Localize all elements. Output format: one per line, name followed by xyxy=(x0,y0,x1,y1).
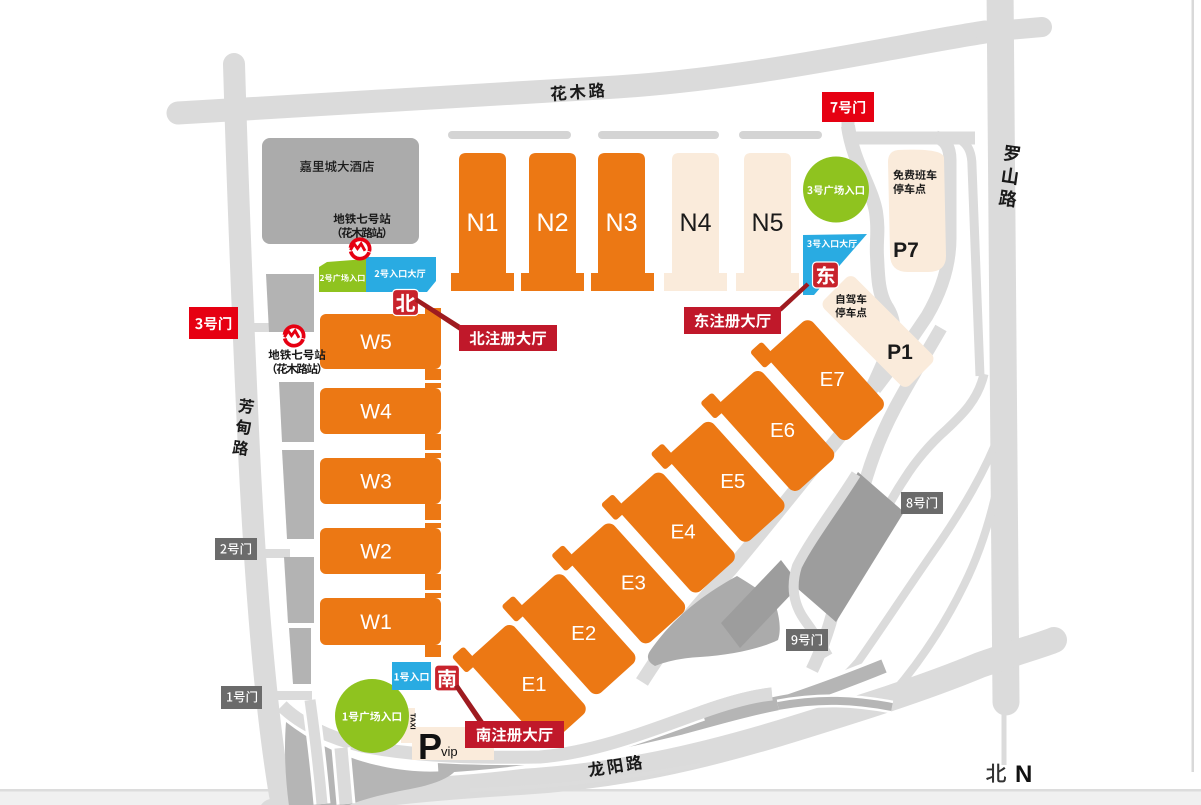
svg-text:N3: N3 xyxy=(606,209,638,237)
svg-text:N2: N2 xyxy=(537,209,569,237)
svg-text:TAXI: TAXI xyxy=(409,713,418,730)
svg-text:N5: N5 xyxy=(752,209,784,237)
svg-text:W5: W5 xyxy=(360,331,392,354)
svg-text:E5: E5 xyxy=(720,470,745,493)
svg-text:P7: P7 xyxy=(893,239,919,262)
svg-text:W2: W2 xyxy=(360,541,392,564)
svg-text:vip: vip xyxy=(441,744,458,759)
svg-text:N4: N4 xyxy=(680,209,712,237)
svg-text:N1: N1 xyxy=(467,209,499,237)
svg-text:P1: P1 xyxy=(887,341,913,364)
svg-text:E3: E3 xyxy=(621,571,646,594)
svg-text:E7: E7 xyxy=(820,368,845,391)
svg-text:E4: E4 xyxy=(671,521,696,544)
svg-text:W3: W3 xyxy=(360,471,392,494)
svg-text:E2: E2 xyxy=(571,622,596,645)
svg-text:W1: W1 xyxy=(360,611,392,634)
svg-text:E6: E6 xyxy=(770,419,795,442)
svg-text:P: P xyxy=(418,726,442,767)
svg-text:E1: E1 xyxy=(521,673,546,696)
svg-text:W4: W4 xyxy=(360,401,392,424)
svg-text:N: N xyxy=(1015,761,1032,788)
